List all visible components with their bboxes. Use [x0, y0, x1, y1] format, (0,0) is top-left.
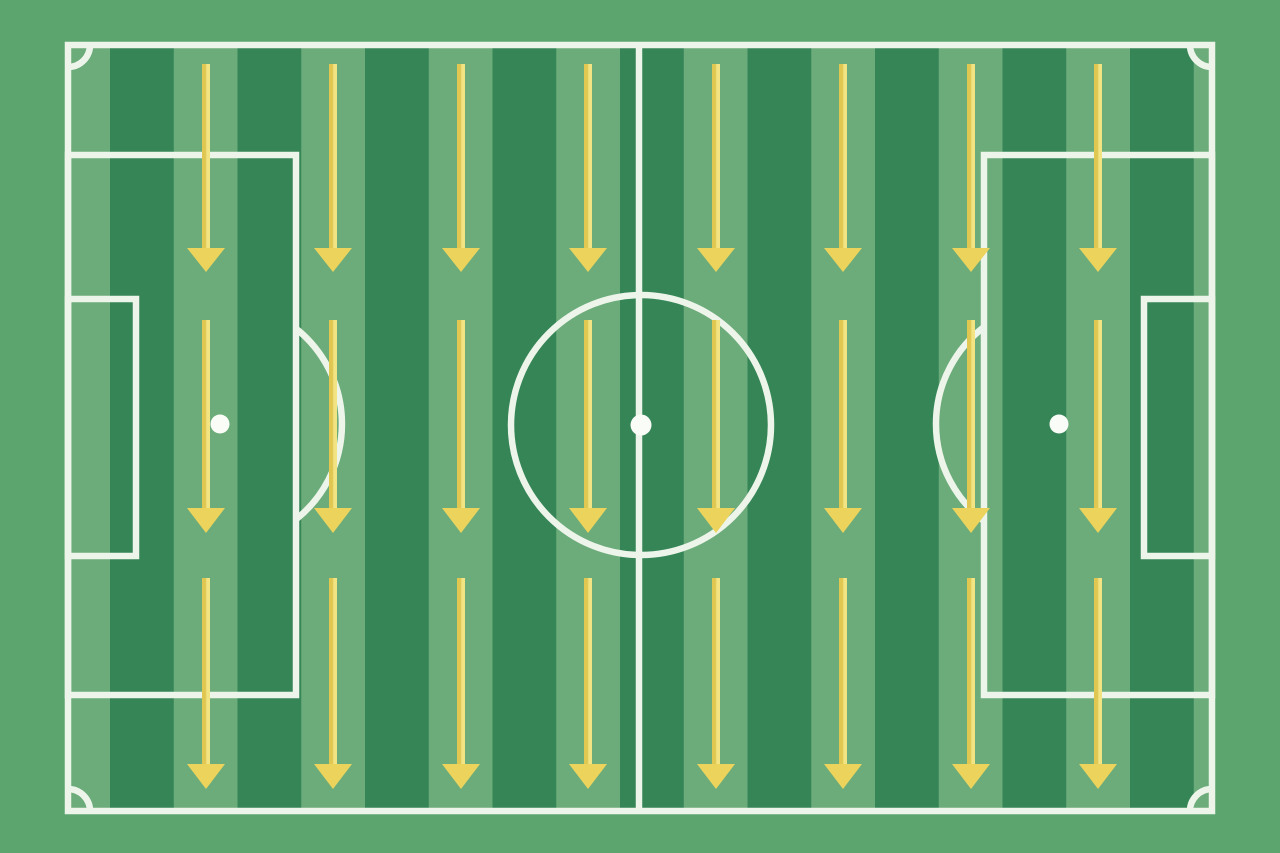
- arrow-shaft: [967, 320, 975, 512]
- arrow-shaft: [1094, 64, 1102, 252]
- pitch-svg: [0, 0, 1280, 853]
- pitch-diagram: [0, 0, 1280, 853]
- penalty-spot-left: [211, 415, 230, 434]
- arrow-shaft: [329, 64, 337, 252]
- arrow-shaft: [584, 578, 592, 768]
- arrow-shaft: [1094, 320, 1102, 512]
- arrow-shaft: [457, 64, 465, 252]
- arrow-shaft: [202, 320, 210, 512]
- penalty-spot-right: [1050, 415, 1069, 434]
- arrow-shaft: [839, 64, 847, 252]
- arrow-shaft: [712, 578, 720, 768]
- arrow-shaft: [712, 64, 720, 252]
- arrow-shaft: [329, 320, 337, 512]
- arrow-shaft: [457, 578, 465, 768]
- arrow-shaft: [202, 578, 210, 768]
- arrow-shaft: [584, 320, 592, 512]
- arrow-shaft: [457, 320, 465, 512]
- arrow-shaft: [329, 578, 337, 768]
- arrow-shaft: [1094, 578, 1102, 768]
- arrow-shaft: [584, 64, 592, 252]
- arrow-shaft: [967, 578, 975, 768]
- center-spot: [631, 415, 652, 436]
- arrow-shaft: [202, 64, 210, 252]
- arrow-shaft: [839, 578, 847, 768]
- arrow-shaft: [712, 320, 720, 512]
- arrow-shaft: [839, 320, 847, 512]
- arrow-shaft: [967, 64, 975, 252]
